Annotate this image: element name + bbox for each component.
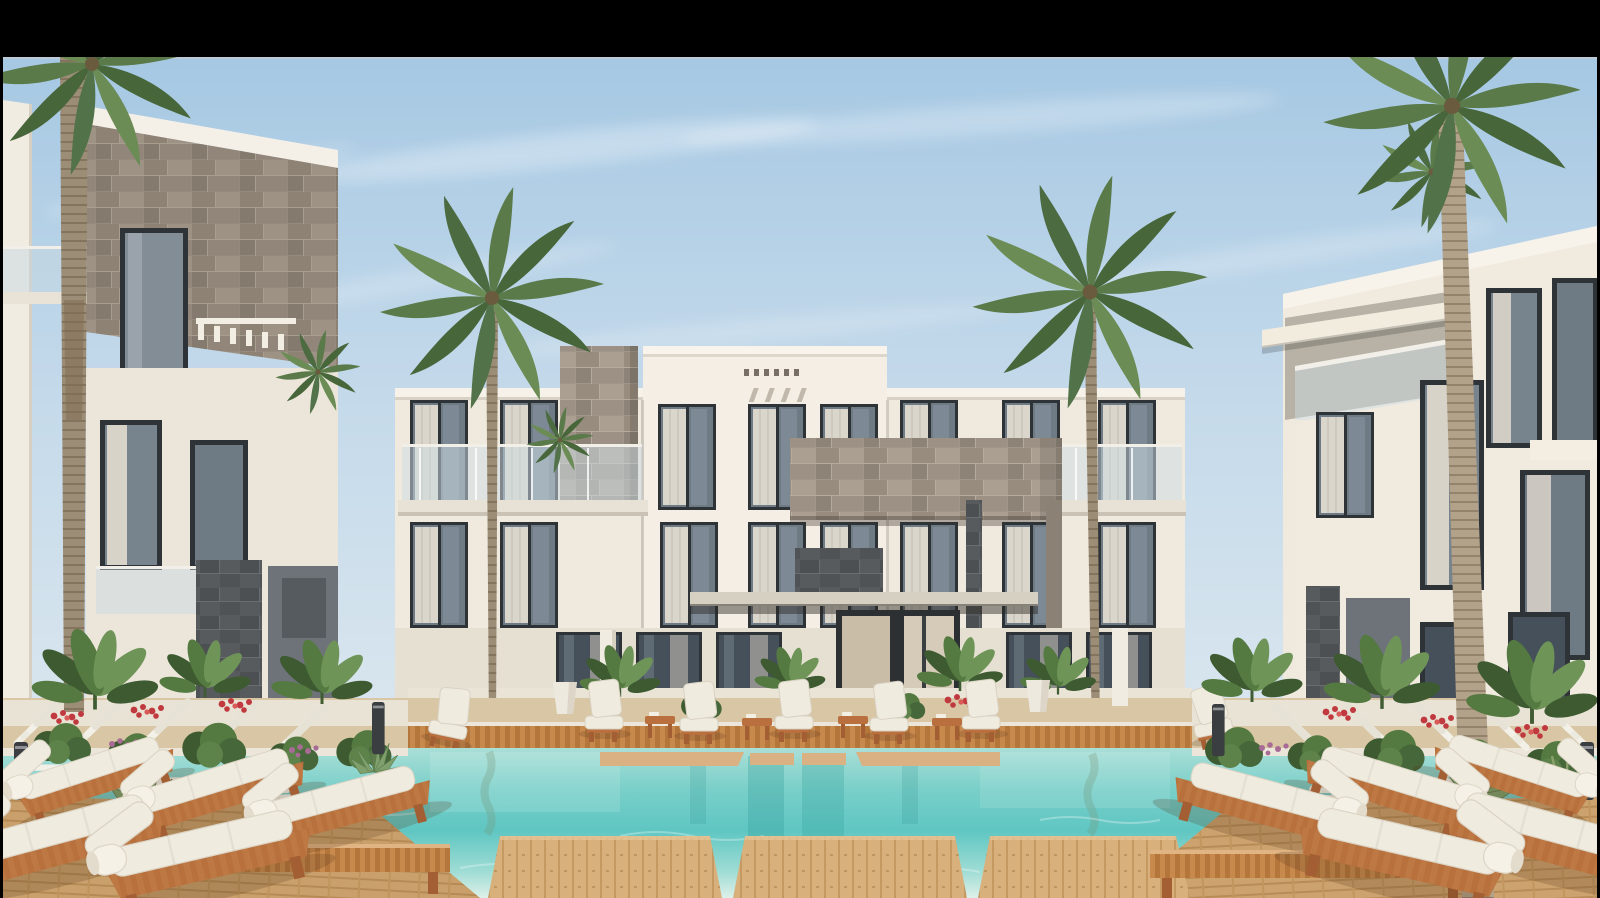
- right-upper-windows: [1486, 278, 1597, 448]
- entrance-canopy: [690, 592, 1038, 606]
- stone-balcony-box: [790, 438, 1062, 526]
- resort-pool-rendering: [0, 0, 1600, 898]
- stepping-platforms: [488, 836, 1190, 898]
- photo-area: [0, 0, 1600, 898]
